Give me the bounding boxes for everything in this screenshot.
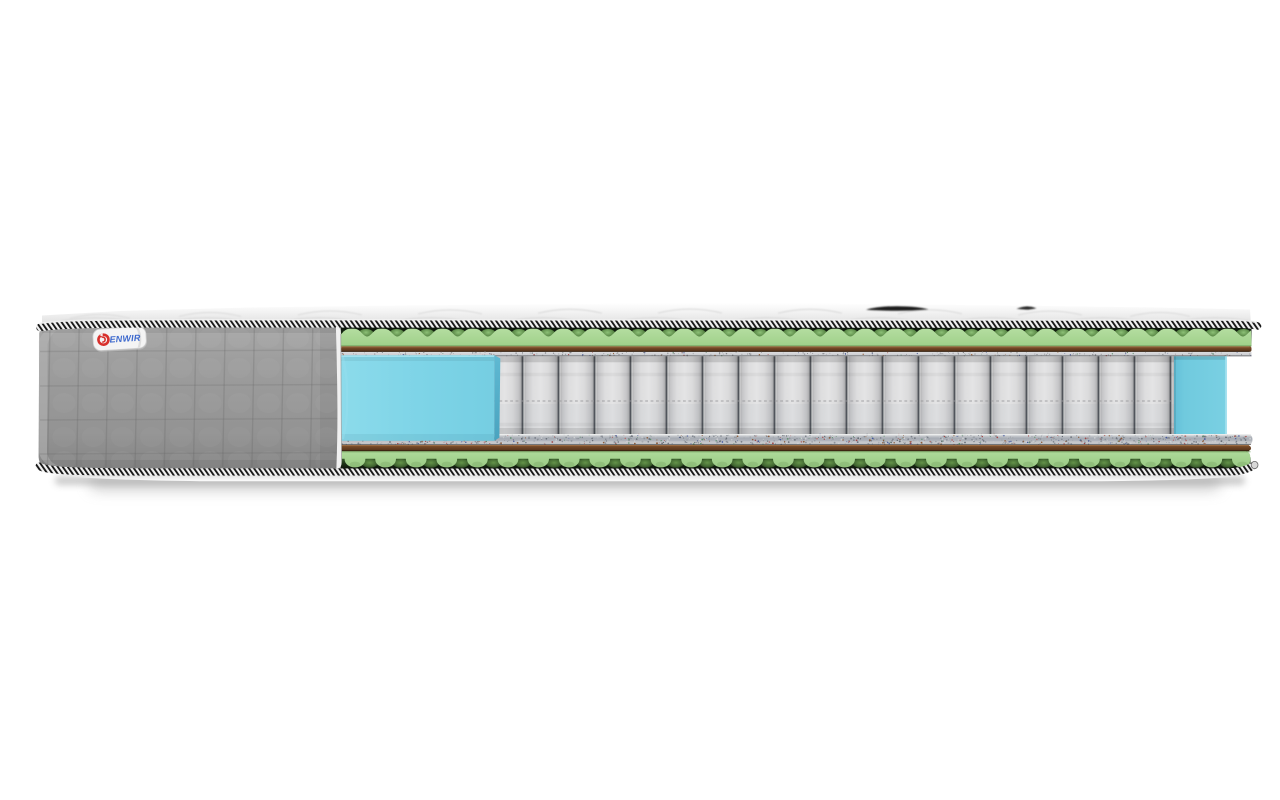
svg-text:ENWIR: ENWIR [109,333,141,345]
